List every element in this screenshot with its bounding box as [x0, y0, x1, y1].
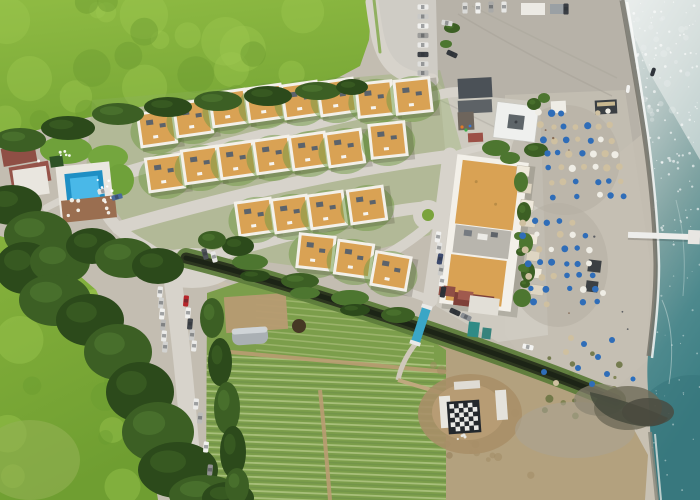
tree-highlight — [522, 281, 527, 284]
rooftop-unit — [377, 131, 384, 137]
sea-sparkle — [674, 219, 676, 221]
sea-sparkle — [661, 161, 664, 164]
sea-sparkle — [654, 58, 655, 59]
car-glass — [190, 333, 194, 337]
sea-sparkle — [697, 208, 700, 211]
rooftop-unit — [345, 249, 353, 255]
tree-highlight — [39, 247, 66, 265]
white-structure — [495, 390, 508, 421]
tree-highlight — [140, 253, 163, 267]
sea-sparkle — [664, 80, 671, 87]
sea-sparkle — [661, 16, 665, 20]
car-glass — [194, 402, 198, 406]
rooftop-unit — [262, 147, 270, 153]
shrub — [545, 395, 553, 403]
beach-umbrella — [609, 337, 615, 343]
car-glass — [445, 21, 449, 26]
sea-sparkle — [637, 53, 640, 56]
car — [418, 14, 429, 19]
shrub — [570, 361, 575, 366]
car-glass — [564, 7, 568, 10]
beach-umbrella — [605, 108, 610, 113]
sea-sparkle — [674, 139, 676, 141]
car-glass — [476, 6, 480, 9]
grass-blotch — [23, 376, 41, 394]
sea-sparkle — [686, 217, 688, 219]
beach-umbrella — [519, 232, 526, 239]
beach-umbrella — [558, 164, 564, 170]
sea-sparkle — [660, 11, 662, 13]
sea-sparkle — [695, 106, 697, 108]
sea-sparkle — [642, 52, 643, 53]
car — [160, 319, 166, 330]
building-roof — [371, 123, 406, 156]
beach-umbrella — [548, 109, 555, 116]
building-roof — [327, 131, 363, 165]
beach-umbrella — [559, 178, 566, 185]
beach-umbrella — [567, 286, 572, 291]
dirt-mottle — [430, 362, 437, 369]
sea-sparkle — [691, 185, 693, 187]
sea-sparkle — [683, 394, 684, 395]
playground-item — [460, 125, 463, 128]
checker-cell — [468, 403, 473, 408]
rooftop-unit — [257, 212, 263, 217]
sea-sparkle — [689, 181, 690, 182]
sea-sparkle — [660, 50, 667, 57]
sea-sparkle — [651, 22, 653, 24]
dark-roof-building — [458, 112, 475, 131]
tree-highlight — [245, 272, 259, 277]
sea-sparkle — [693, 4, 696, 7]
sun-lounger — [68, 154, 71, 157]
checker-cell — [451, 422, 456, 427]
rooftop-unit — [146, 120, 154, 126]
car — [161, 330, 167, 341]
sea-sparkle — [672, 160, 675, 163]
sea-sparkle — [673, 275, 674, 276]
sun-lounger — [97, 179, 99, 181]
tree-highlight — [133, 411, 165, 435]
car — [187, 318, 193, 329]
car — [191, 340, 197, 351]
small-red-hut — [468, 133, 483, 143]
sea-sparkle — [635, 17, 640, 22]
beach-umbrella — [592, 286, 599, 293]
building-roof — [309, 193, 345, 227]
playground-item — [464, 128, 467, 131]
beach-umbrella — [606, 178, 612, 184]
sea-sparkle — [664, 2, 665, 3]
sea-sparkle — [664, 395, 665, 396]
grass-blotch — [177, 56, 214, 93]
beach-person — [568, 312, 570, 314]
car-glass — [159, 301, 163, 305]
rooftop-unit — [356, 197, 364, 203]
car-glass — [421, 71, 424, 75]
rooftop-unit — [316, 202, 324, 208]
beach-umbrella — [528, 286, 533, 291]
car — [197, 412, 203, 423]
sun-lounger — [101, 186, 104, 189]
sea-sparkle — [676, 153, 678, 155]
beach-umbrella — [551, 138, 558, 145]
tree-highlight — [229, 473, 240, 487]
car — [418, 52, 429, 57]
rooftop-vent — [409, 103, 414, 107]
car — [418, 70, 429, 75]
tree-highlight — [287, 275, 304, 281]
beach-umbrella — [575, 136, 580, 141]
beach-umbrella — [568, 335, 574, 341]
beach-umbrella — [611, 151, 618, 158]
tree-highlight — [516, 233, 521, 236]
rooftop-vent — [310, 258, 315, 262]
dark-outflow — [622, 398, 674, 426]
tree-highlight — [519, 205, 525, 213]
car-glass — [186, 311, 190, 315]
rooftop-unit — [244, 209, 252, 215]
rooftop-unit — [275, 150, 281, 155]
rooftop-unit — [319, 248, 325, 253]
sea-sparkle — [681, 489, 683, 491]
checker-cell — [473, 407, 478, 412]
playground-item — [469, 125, 472, 128]
tree-highlight — [100, 106, 123, 115]
sea-sparkle — [661, 229, 663, 231]
tree-highlight — [529, 100, 535, 105]
sea-sparkle — [677, 112, 679, 114]
beach-umbrella — [580, 299, 586, 305]
rooftop-vent — [384, 147, 389, 151]
beach-umbrella — [604, 371, 610, 377]
rooftop-unit — [293, 209, 299, 214]
sea-sparkle — [662, 225, 664, 227]
sea-sparkle — [641, 45, 647, 51]
car-glass — [161, 323, 165, 327]
scene-canvas — [0, 0, 700, 500]
beach-umbrella — [597, 192, 603, 198]
sea-sparkle — [678, 154, 680, 156]
grass-blotch — [175, 22, 201, 48]
beach-person — [545, 129, 547, 131]
terrace-umbrella — [102, 198, 106, 202]
beach-umbrella — [576, 272, 582, 278]
tree-highlight — [386, 309, 401, 315]
tree-highlight — [201, 94, 223, 102]
rooftop-unit — [154, 165, 162, 171]
sea-sparkle — [677, 167, 680, 170]
sea-sparkle — [661, 177, 662, 178]
tree-highlight — [74, 233, 97, 247]
building-roof — [349, 188, 385, 222]
terrace-umbrella — [107, 211, 111, 215]
sea-sparkle — [684, 53, 686, 55]
car — [418, 42, 429, 47]
sea-sparkle — [670, 132, 672, 134]
checker-cell — [455, 417, 460, 422]
checker-cell — [449, 404, 454, 409]
sea-sparkle — [692, 165, 695, 168]
sea-sparkle — [642, 11, 643, 12]
beach-umbrella — [544, 301, 550, 307]
tree-highlight — [295, 289, 309, 294]
sea-sparkle — [688, 86, 689, 87]
sea-sparkle — [643, 68, 644, 69]
sea-sparkle — [688, 112, 689, 113]
tree-highlight — [66, 302, 97, 323]
sea-sparkle — [685, 71, 690, 76]
car — [418, 23, 429, 28]
white-deck — [468, 295, 500, 316]
sea-sparkle — [660, 295, 662, 297]
tree-highlight — [528, 145, 539, 151]
shrub — [613, 376, 616, 379]
sea-sparkle — [678, 26, 685, 33]
sun-lounger — [107, 180, 110, 183]
beach-umbrella — [581, 164, 587, 170]
beach-umbrella — [621, 193, 627, 199]
sea-sparkle — [670, 52, 672, 54]
tree-highlight — [486, 142, 499, 148]
grass-blotch — [130, 18, 158, 46]
beach-umbrella — [557, 218, 563, 224]
sea-sparkle — [679, 34, 681, 36]
sea-sparkle — [696, 352, 698, 354]
sea-sparkle — [679, 188, 681, 190]
car-glass — [160, 312, 164, 316]
rooftop-unit — [416, 91, 422, 96]
beach-umbrella — [575, 261, 581, 267]
sun-lounger — [63, 150, 66, 153]
car — [462, 3, 467, 14]
tree-highlight — [202, 234, 215, 241]
beach-umbrella — [541, 369, 547, 375]
sea-sparkle — [666, 47, 670, 51]
compost-mound — [292, 319, 306, 333]
sea-sparkle — [653, 10, 656, 13]
beach-umbrella — [550, 195, 556, 201]
sun-lounger — [60, 154, 62, 156]
tree-highlight — [14, 218, 45, 237]
beach-umbrella — [594, 299, 600, 305]
sea-sparkle — [667, 157, 668, 158]
beach-umbrella — [581, 341, 587, 347]
tree-highlight — [4, 250, 31, 271]
sea-sparkle — [646, 78, 648, 80]
sun-lounger — [59, 151, 62, 154]
car-glass — [158, 290, 162, 294]
sea-sparkle — [688, 152, 691, 155]
beach-umbrella — [583, 233, 589, 239]
sea-sparkle — [652, 17, 653, 18]
dirt-mottle — [494, 453, 502, 461]
checker-cell — [458, 403, 463, 408]
dark-roof-building — [458, 99, 493, 114]
sea-sparkle — [644, 30, 646, 32]
rooftop-unit — [491, 232, 499, 238]
beach-umbrella — [584, 122, 591, 129]
beach-umbrella — [618, 179, 624, 185]
tree-highlight — [49, 120, 73, 130]
beach-person — [622, 311, 624, 313]
sun-lounger — [110, 189, 113, 192]
checker-cell — [459, 412, 464, 417]
beach-umbrella — [573, 179, 579, 185]
rooftop-unit — [203, 160, 209, 165]
sea-sparkle — [683, 392, 685, 394]
beach-umbrella — [535, 109, 542, 116]
car-glass — [440, 279, 445, 283]
tree-highlight — [518, 249, 523, 252]
tree-highlight — [503, 154, 512, 159]
checker-cell — [465, 426, 470, 431]
sea-sparkle — [690, 52, 692, 54]
sea-sparkle — [692, 271, 693, 272]
rooftop-unit — [477, 233, 488, 240]
tree-highlight — [302, 85, 323, 92]
sea-sparkle — [653, 36, 659, 42]
terrace-umbrella — [70, 198, 74, 202]
dirt-mottle — [486, 457, 491, 462]
checker-cell — [450, 413, 455, 418]
greenhouse — [231, 326, 268, 345]
beach-umbrella — [555, 150, 561, 156]
sea-sparkle — [653, 90, 656, 93]
terrace-umbrella — [105, 206, 109, 210]
car — [418, 4, 429, 9]
rooftop-vent — [371, 106, 376, 110]
sea-sparkle — [639, 28, 640, 29]
terrace-umbrella — [76, 208, 80, 212]
rooftop-unit — [402, 87, 409, 93]
car — [501, 2, 506, 13]
car-glass — [421, 62, 424, 66]
grass-blotch — [98, 430, 113, 445]
sea-sparkle — [656, 32, 658, 34]
sea-sparkle — [642, 60, 644, 62]
car-glass — [163, 345, 167, 349]
sea-sparkle — [686, 12, 687, 13]
beach-umbrella — [551, 273, 557, 279]
sea-sparkle — [654, 47, 656, 49]
car-glass — [421, 24, 424, 28]
sea-sparkle — [657, 137, 660, 140]
shade-canopy — [49, 155, 63, 168]
car-glass — [421, 34, 424, 38]
beach-umbrella — [563, 349, 569, 355]
tree-highlight — [2, 132, 25, 142]
tree-highlight — [237, 256, 253, 262]
sea-sparkle — [693, 142, 694, 143]
beach-umbrella — [522, 246, 529, 253]
rooftop-unit — [226, 152, 234, 158]
car — [207, 464, 213, 475]
beach-umbrella — [549, 180, 554, 185]
car — [563, 4, 568, 15]
car — [183, 295, 189, 306]
jetty-platform — [688, 230, 700, 244]
car-glass — [463, 6, 467, 9]
tree-highlight — [151, 100, 173, 108]
rooftop-unit — [357, 255, 363, 260]
beach-umbrella — [536, 246, 542, 252]
sea-sparkle — [683, 35, 689, 41]
beach-umbrella — [542, 286, 549, 293]
car-glass — [436, 235, 441, 239]
car — [203, 441, 209, 452]
lawn — [40, 136, 92, 164]
beach-umbrella — [569, 165, 576, 172]
dirt-mottle — [446, 452, 453, 459]
beach-umbrella — [569, 220, 575, 226]
tree-highlight — [345, 306, 359, 311]
rooftop-unit — [306, 242, 313, 248]
grass-blotch — [73, 49, 111, 87]
sea-sparkle — [656, 109, 659, 112]
car-glass — [204, 445, 208, 449]
beach-umbrella — [534, 232, 539, 237]
car — [418, 33, 429, 38]
sea-sparkle — [669, 285, 671, 287]
sea-sparkle — [653, 442, 655, 444]
beach-umbrella — [561, 124, 567, 130]
sea-sparkle — [684, 26, 688, 30]
shrub — [590, 351, 595, 356]
beach-umbrella — [600, 290, 606, 296]
beach-umbrella — [588, 138, 594, 144]
beach-umbrella — [596, 124, 602, 130]
terrace-umbrella — [67, 214, 70, 217]
beach-umbrella — [564, 261, 569, 266]
tree-highlight — [150, 450, 186, 472]
beach-umbrella — [609, 138, 615, 144]
rooftop-unit — [167, 168, 173, 173]
sea-sparkle — [632, 12, 635, 15]
tree-highlight — [442, 41, 447, 44]
teal-deck — [467, 321, 480, 337]
beach-umbrella — [525, 273, 532, 280]
grass-blotch — [114, 42, 142, 70]
car-glass — [421, 43, 424, 47]
car — [158, 297, 164, 308]
rooftop-unit — [334, 140, 342, 146]
car-glass — [438, 257, 443, 261]
rooftop-unit — [329, 205, 335, 210]
beach-umbrella — [558, 110, 564, 116]
tree-highlight — [516, 292, 524, 299]
rooftop-unit — [159, 123, 165, 128]
car-glass — [502, 5, 506, 8]
sea-sparkle — [697, 102, 698, 103]
sea-sparkle — [658, 101, 663, 106]
tree-highlight — [337, 292, 354, 298]
sea-sparkle — [655, 54, 657, 56]
beach-umbrella — [580, 286, 587, 293]
sea-sparkle — [645, 86, 647, 88]
platform-dot — [462, 433, 465, 436]
shrub — [616, 361, 623, 368]
beach-umbrella — [586, 247, 592, 253]
car — [488, 2, 493, 13]
beach-umbrella — [545, 165, 551, 171]
beach-umbrella — [570, 232, 576, 238]
beach-umbrella — [602, 150, 609, 157]
car — [185, 307, 191, 318]
sea-sparkle — [659, 77, 660, 78]
sea-sparkle — [674, 60, 678, 64]
hotel-roof-north — [455, 160, 520, 231]
